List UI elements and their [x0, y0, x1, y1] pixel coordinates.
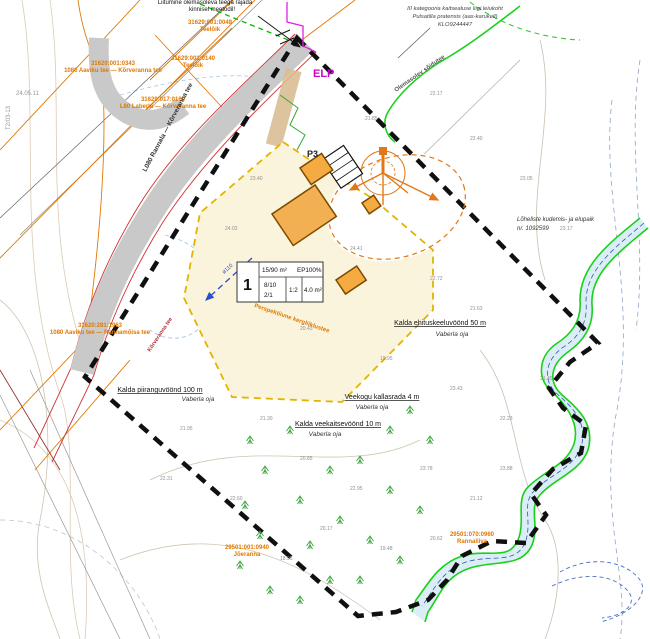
- cadastral-id-label: 31629:001:0049: [188, 20, 233, 26]
- tree-icon: [257, 531, 264, 539]
- elevation-value: 21.45: [540, 376, 553, 382]
- table-right: 4.0 m²: [304, 287, 322, 294]
- plot-number: 1: [243, 277, 252, 294]
- elevation-value: 22.40: [470, 136, 483, 142]
- elevation-value: 23.43: [450, 386, 463, 392]
- cadastral-id-label: 29501:070:0960: [450, 532, 495, 538]
- protected-species-line3: KLO9244447: [438, 22, 473, 28]
- elevation-value: 22.95: [350, 486, 363, 492]
- top-note-line2: kinnisel meetodil!: [189, 7, 235, 13]
- stream-water: [412, 218, 648, 622]
- stream-name-label: Vaberla oja: [182, 396, 215, 403]
- tree-icon: [397, 556, 404, 564]
- stream: [412, 218, 648, 622]
- tree-icon: [427, 436, 434, 444]
- elevation-value: 22.72: [430, 276, 443, 282]
- cadastral-name-label: Teelõik: [200, 27, 221, 33]
- zone-title-label: Kalda ehituskeeluvöönd 50 m: [394, 320, 486, 327]
- parking-label: P3: [307, 149, 318, 159]
- table-r2: 2/1: [264, 292, 273, 299]
- cadastral-id-label: 31620:001:0343: [91, 61, 136, 67]
- elevation-value: 23.05: [520, 176, 533, 182]
- elevation-value: 21.85: [365, 116, 378, 122]
- elevation-value: 22.17: [430, 91, 443, 97]
- elevation-value: 18.95: [280, 556, 293, 562]
- tree-icon: [407, 406, 414, 414]
- protected-species-line1: III kategooria kaitsealuse liigi leiukoh…: [407, 6, 503, 12]
- tree-icon: [237, 561, 244, 569]
- road-name-label: Kõrveranna tee: [147, 317, 174, 354]
- tree-icon: [327, 466, 334, 474]
- tree-icon: [367, 536, 374, 544]
- elevation-value: 22.60: [230, 496, 243, 502]
- fish-habitat-line1: Lõheliste kudemis- ja elupaik: [517, 217, 595, 223]
- table-area: 15/90 m²: [262, 267, 287, 274]
- tree-icon: [417, 506, 424, 514]
- stream-name-label: Vaberla oja: [309, 431, 342, 438]
- elevation-value: 20.17: [320, 526, 333, 532]
- elevation-value: 21.63: [470, 306, 483, 312]
- elevation-value: 22.31: [160, 476, 173, 482]
- elevation-value: 19.48: [380, 546, 393, 552]
- elevation-value: 21.30: [260, 416, 273, 422]
- grid-date: 24.05.11: [16, 91, 40, 97]
- tree-icon: [247, 436, 254, 444]
- cadastral-id-label: 29501:001:0940: [225, 545, 270, 551]
- note-leader-line: [258, 16, 300, 47]
- cadastral-name-label: 1080 Aaviku tee — Rannamõisa tee: [50, 330, 151, 336]
- tree-icon: [267, 586, 274, 594]
- map-canvas: 1 15/90 m² EP100% 8/10 2/1 1:2 4.0 m² Li…: [0, 0, 650, 639]
- cadastral-name-label: Teelõik: [183, 63, 204, 69]
- cadastral-id-label: 31620:281:1963: [78, 323, 123, 329]
- cadastral-id-label: 31629:001:0140: [171, 56, 216, 62]
- elevation-value: 19.95: [380, 356, 393, 362]
- elevation-value: 23.88: [500, 466, 513, 472]
- cadastral-name-label: Jõeranna: [234, 552, 261, 558]
- tree-icon: [262, 466, 269, 474]
- cadastral-name-label: 1080 Aaviku tee — Kõrveranna tee: [64, 68, 162, 74]
- tree-icon: [287, 426, 294, 434]
- elevation-value: 21.95: [180, 426, 193, 432]
- tree-icon: [242, 501, 249, 509]
- fish-habitat-line2: nr. 1092599: [517, 226, 549, 232]
- elevation-value: 22.23: [500, 416, 513, 422]
- elevation-value: 24.02: [225, 226, 238, 232]
- zone-title-label: Kalda piiranguvöönd 100 m: [117, 387, 202, 394]
- elp-connection-point-label: ELP: [313, 68, 334, 80]
- cadastral-name-label: Rannaliiva: [457, 539, 488, 545]
- elevation-value: 20.43: [300, 326, 313, 332]
- zone-title-label: Kalda veekaitsevöönd 10 m: [295, 421, 381, 428]
- tree-icon: [297, 596, 304, 604]
- mast-icon: [379, 147, 387, 155]
- elevation-value: 24.41: [350, 246, 363, 252]
- table-mid: 1:2: [289, 287, 298, 294]
- top-note-line1: Liitumine olemasoleva teega rajada: [158, 0, 253, 6]
- elevation-value: 20.85: [300, 456, 313, 462]
- tree-icon: [307, 541, 314, 549]
- tree-icon: [357, 576, 364, 584]
- table-ep: EP100%: [297, 267, 322, 274]
- tree-icon: [327, 576, 334, 584]
- old-stream-arm: [560, 562, 643, 622]
- table-r1: 8/10: [264, 282, 277, 289]
- zone-title-label: Veekogu kallasrada 4 m: [345, 394, 420, 401]
- elevation-value: 21.12: [470, 496, 483, 502]
- old-stream-arm2: [552, 576, 631, 618]
- prot-leader-line: [398, 28, 430, 58]
- stream-centerline: [422, 223, 644, 606]
- stream-name-label: Vaberla oja: [356, 404, 389, 411]
- cadastral-name-label: L80 Laberla — Kõrveranna tee: [120, 104, 207, 110]
- stream-name-label: Vaberla oja: [436, 331, 469, 338]
- tree-icon: [297, 496, 304, 504]
- elevation-value: 23.78: [420, 466, 433, 472]
- elevation-value: 23.17: [560, 226, 573, 232]
- frame-reference: T2/03-13: [6, 105, 12, 130]
- elevation-value: 23.40: [250, 176, 263, 182]
- site-plan-map: 1 15/90 m² EP100% 8/10 2/1 1:2 4.0 m² Li…: [0, 0, 650, 639]
- tree-icon: [387, 486, 394, 494]
- elevation-value: 20.62: [430, 536, 443, 542]
- tree-icon: [337, 516, 344, 524]
- building-rights-table: 1 15/90 m² EP100% 8/10 2/1 1:2 4.0 m²: [237, 262, 323, 302]
- protected-species-line2: Pulsatilla pratensis (aas-karukell): [412, 14, 497, 20]
- road-name-label: Olemasolev sõidutee: [394, 54, 447, 94]
- tree-icon: [357, 456, 364, 464]
- tree-icon: [387, 426, 394, 434]
